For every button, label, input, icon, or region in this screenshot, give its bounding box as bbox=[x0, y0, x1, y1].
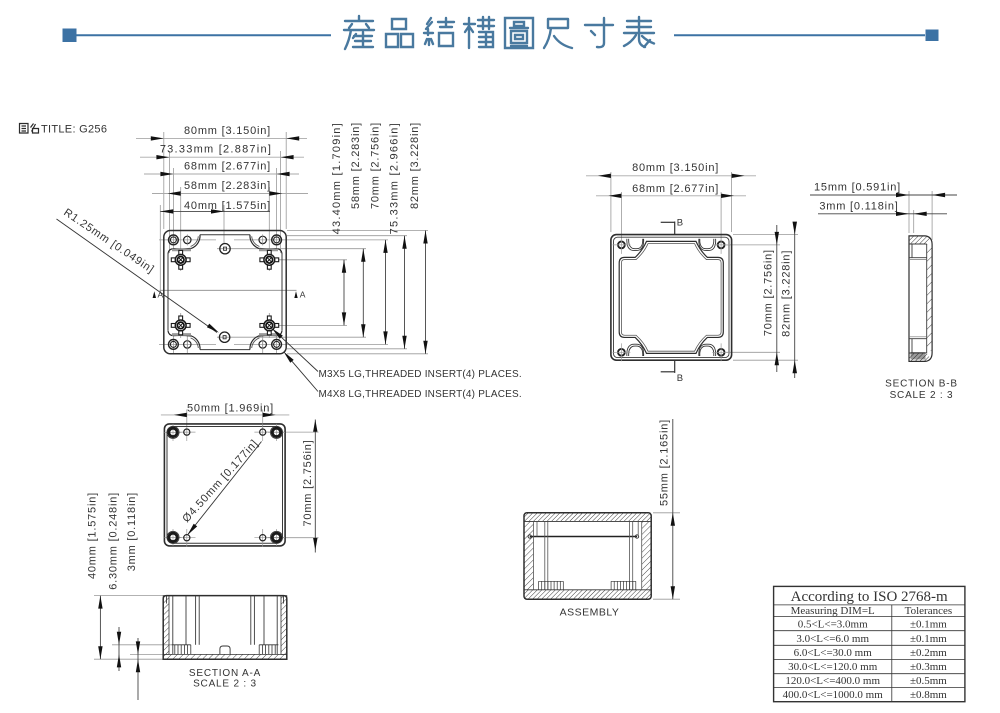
svg-text:58mm [2.283in]: 58mm [2.283in] bbox=[184, 180, 271, 192]
svg-text:M3X5 LG,THREADED INSERT(4) PLA: M3X5 LG,THREADED INSERT(4) PLACES. bbox=[319, 369, 522, 380]
svg-text:A: A bbox=[300, 289, 306, 299]
svg-text:6.0<L<=30.0 mm: 6.0<L<=30.0 mm bbox=[794, 647, 873, 659]
svg-text:120.0<L<=400.0 mm: 120.0<L<=400.0 mm bbox=[785, 675, 880, 687]
svg-text:±0.8mm: ±0.8mm bbox=[910, 689, 947, 701]
svg-text:70mm [2.756in]: 70mm [2.756in] bbox=[370, 122, 382, 209]
svg-text:0.5<L<=3.0mm: 0.5<L<=3.0mm bbox=[798, 619, 868, 631]
svg-text:SCALE 2 : 3: SCALE 2 : 3 bbox=[890, 390, 954, 401]
svg-text:SECTION A-A: SECTION A-A bbox=[189, 668, 261, 679]
svg-text:±0.5mm: ±0.5mm bbox=[910, 675, 947, 687]
svg-text:Tolerances: Tolerances bbox=[905, 605, 952, 617]
svg-text:68mm [2.677in]: 68mm [2.677in] bbox=[184, 160, 271, 172]
svg-text:3.0<L<=6.0 mm: 3.0<L<=6.0 mm bbox=[796, 633, 869, 645]
svg-text:400.0<L<=1000.0 mm: 400.0<L<=1000.0 mm bbox=[783, 689, 884, 701]
svg-text:Measuring DIM=L: Measuring DIM=L bbox=[791, 605, 875, 617]
svg-text:75.33mm [2.966in]: 75.33mm [2.966in] bbox=[389, 122, 401, 234]
svg-text:70mm [2.756in]: 70mm [2.756in] bbox=[763, 249, 775, 336]
svg-text:80mm [3.150in]: 80mm [3.150in] bbox=[632, 162, 719, 174]
svg-text:B: B bbox=[677, 218, 683, 229]
svg-text:6.30mm [0.248in]: 6.30mm [0.248in] bbox=[108, 492, 120, 590]
svg-text:SECTION B-B: SECTION B-B bbox=[885, 379, 958, 390]
svg-text:80mm [3.150in]: 80mm [3.150in] bbox=[184, 125, 271, 137]
svg-text:±0.1mm: ±0.1mm bbox=[910, 633, 947, 645]
svg-text:±0.2mm: ±0.2mm bbox=[910, 647, 947, 659]
svg-text:±0.1mm: ±0.1mm bbox=[910, 619, 947, 631]
svg-text:58mm [2.283in]: 58mm [2.283in] bbox=[350, 122, 362, 209]
svg-text:ASSEMBLY: ASSEMBLY bbox=[560, 607, 620, 619]
svg-text:15mm [0.591in]: 15mm [0.591in] bbox=[814, 182, 901, 194]
svg-text:3mm [0.118in]: 3mm [0.118in] bbox=[819, 201, 898, 213]
svg-text:40mm [1.575in]: 40mm [1.575in] bbox=[86, 492, 98, 579]
svg-text:68mm [2.677in]: 68mm [2.677in] bbox=[632, 183, 719, 195]
svg-text:TITLE: G256: TITLE: G256 bbox=[41, 124, 107, 136]
svg-text:50mm [1.969in]: 50mm [1.969in] bbox=[187, 402, 274, 414]
svg-text:43.40mm [1.709in]: 43.40mm [1.709in] bbox=[331, 122, 343, 234]
svg-text:According to ISO 2768-m: According to ISO 2768-m bbox=[791, 589, 948, 605]
svg-text:70mm [2.756in]: 70mm [2.756in] bbox=[302, 439, 314, 526]
svg-text:82mm [3.228in]: 82mm [3.228in] bbox=[780, 250, 792, 337]
svg-text:3mm [0.118in]: 3mm [0.118in] bbox=[126, 492, 138, 571]
svg-text:±0.3mm: ±0.3mm bbox=[910, 661, 947, 673]
svg-text:B: B bbox=[677, 373, 683, 384]
svg-text:M4X8 LG,THREADED INSERT(4) PLA: M4X8 LG,THREADED INSERT(4) PLACES. bbox=[319, 389, 522, 400]
svg-text:40mm [1.575in]: 40mm [1.575in] bbox=[184, 200, 271, 212]
svg-text:SCALE 2 : 3: SCALE 2 : 3 bbox=[193, 679, 257, 690]
svg-text:30.0<L<=120.0 mm: 30.0<L<=120.0 mm bbox=[788, 661, 878, 673]
svg-text:82mm [3.228in]: 82mm [3.228in] bbox=[409, 122, 421, 209]
svg-text:55mm [2.165in]: 55mm [2.165in] bbox=[659, 419, 671, 506]
svg-text:73.33mm [2.887in]: 73.33mm [2.887in] bbox=[160, 143, 272, 155]
